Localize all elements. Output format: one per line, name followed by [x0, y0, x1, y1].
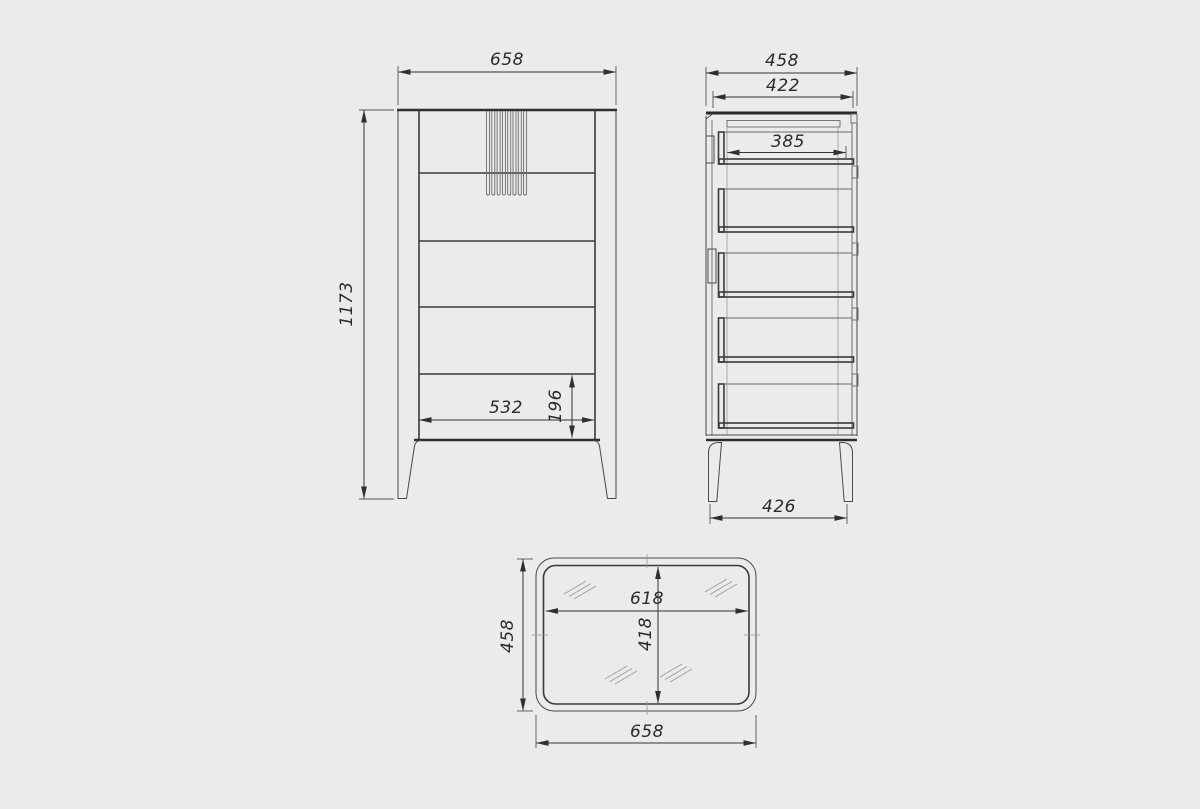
- dim-side-depth-label: 458: [765, 51, 799, 71]
- dim-side-drawer-depth-label: 385: [771, 132, 805, 152]
- front-view: 658 1173 532 196: [337, 50, 617, 499]
- dim-top-width: 658: [536, 715, 756, 748]
- dim-front-height: 1173: [337, 110, 394, 499]
- dim-side-leg-span-label: 426: [762, 497, 796, 517]
- dim-side-drawer-depth: 385: [728, 132, 847, 158]
- side-back-leg: [840, 443, 853, 502]
- drawing-svg: 658 1173 532 196: [0, 0, 1200, 809]
- dim-top-inner-depth-label: 418: [636, 617, 656, 651]
- fluted-handle-grooves: [487, 111, 527, 195]
- technical-drawing-canvas: 658 1173 532 196: [0, 0, 1200, 809]
- dim-top-depth-label: 458: [498, 619, 518, 653]
- side-front-leg: [709, 443, 722, 502]
- side-drawer-3: [719, 253, 854, 297]
- top-view: 618 418 458 658: [498, 554, 760, 748]
- dim-front-drawer-height-label: 196: [546, 389, 566, 423]
- dim-top-inner-width-label: 618: [630, 589, 664, 609]
- dim-front-height-label: 1173: [337, 281, 357, 326]
- front-drawer-dividers: [419, 173, 595, 374]
- side-view: 458 422 385 426: [706, 51, 858, 524]
- side-top-back-notch: [851, 114, 857, 123]
- side-top-inset-panel: [727, 121, 840, 128]
- front-right-leg: [593, 441, 616, 499]
- side-handle-profile-upper: [706, 136, 714, 163]
- dim-front-drawer-height: 196: [546, 376, 572, 438]
- dim-front-inner-width: 532: [420, 398, 595, 420]
- dim-top-inner-depth: 418: [636, 567, 658, 703]
- front-left-leg: [399, 441, 422, 499]
- dim-front-width: 658: [398, 50, 616, 105]
- dim-front-width-label: 658: [490, 50, 524, 70]
- dim-side-top-depth: 422: [713, 76, 853, 108]
- dim-side-top-depth-label: 422: [766, 76, 800, 96]
- dim-top-depth: 458: [498, 559, 533, 711]
- dim-side-leg-span: 426: [710, 497, 847, 524]
- side-drawer-2: [719, 189, 854, 232]
- dim-front-inner-width-label: 532: [489, 398, 523, 418]
- dim-top-width-label: 658: [630, 722, 664, 742]
- side-drawer-4: [719, 318, 854, 362]
- side-drawer-5: [719, 384, 854, 428]
